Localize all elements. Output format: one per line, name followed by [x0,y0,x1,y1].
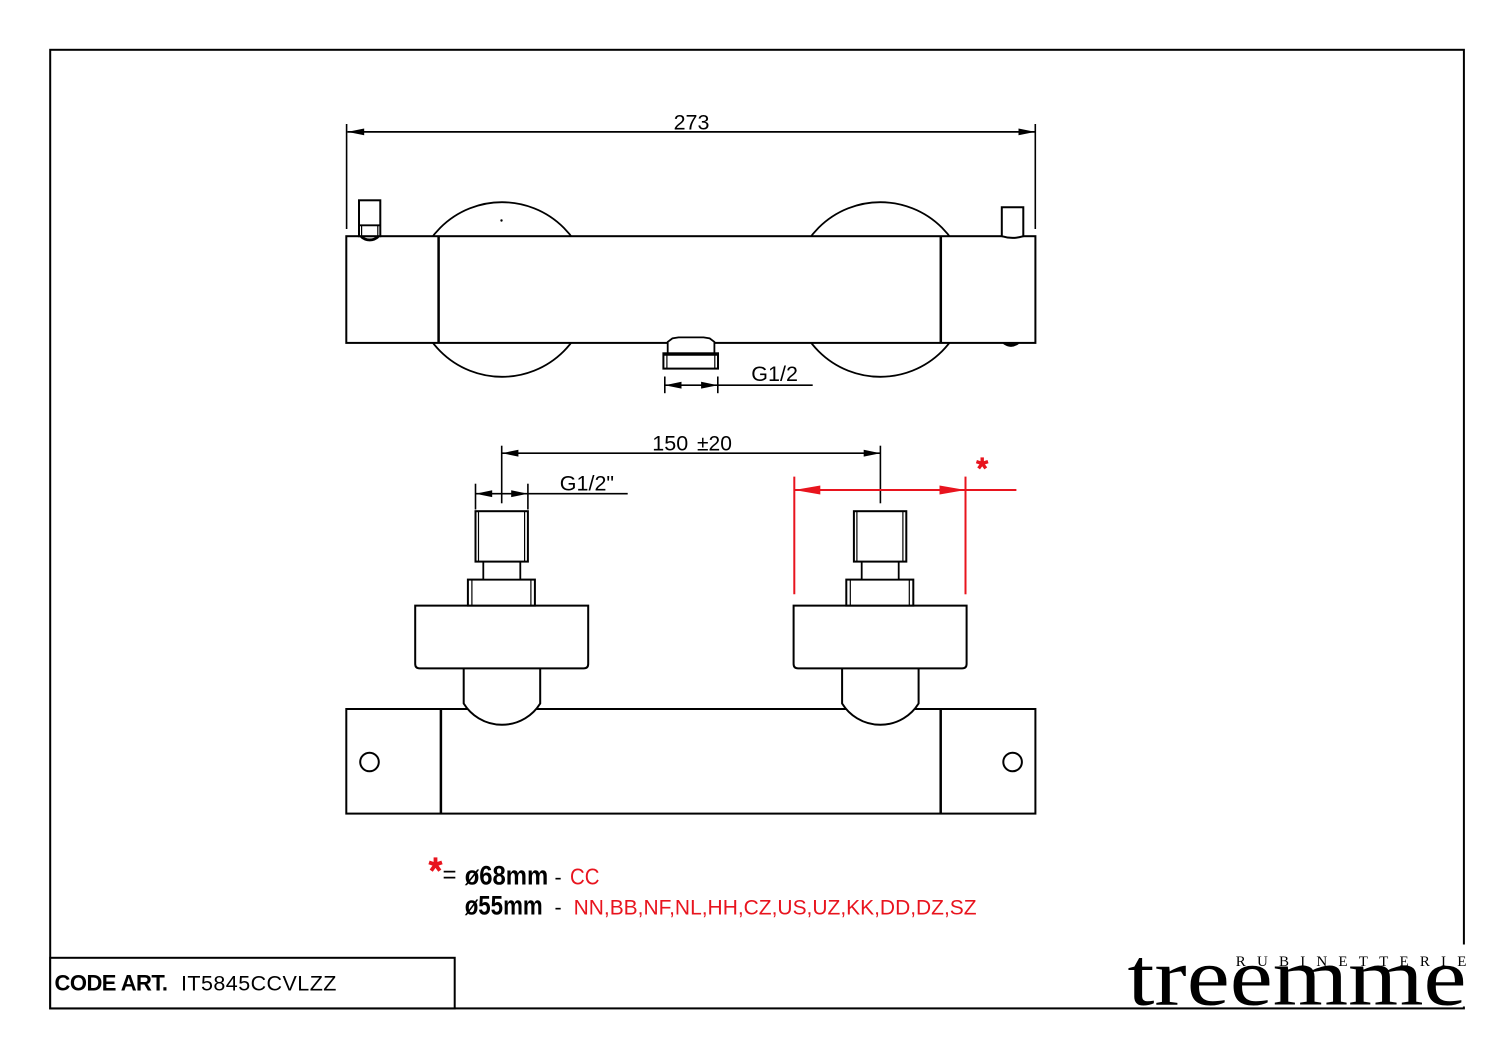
svg-text:ø68mm: ø68mm [465,860,549,890]
svg-text:150: 150 [652,432,688,456]
svg-text:NN,BB,NF,NL,HH,CZ,US,UZ,KK,DD,: NN,BB,NF,NL,HH,CZ,US,UZ,KK,DD,DZ,SZ [574,895,977,919]
svg-text:273: 273 [674,111,710,135]
svg-text:treemme: treemme [1128,931,1467,1023]
svg-text:-: - [555,895,562,919]
svg-text:ø55mm: ø55mm [465,890,543,920]
svg-text:G1/2: G1/2 [751,362,798,386]
svg-text:CC: CC [570,863,600,889]
svg-text:±20: ±20 [697,433,732,456]
svg-text:-: - [555,865,562,889]
svg-text:=: = [443,861,457,888]
svg-text:IT5845CCVLZZ: IT5845CCVLZZ [181,972,336,996]
svg-text:G1/2": G1/2" [560,472,614,496]
svg-text:CODE ART.: CODE ART. [55,971,169,996]
